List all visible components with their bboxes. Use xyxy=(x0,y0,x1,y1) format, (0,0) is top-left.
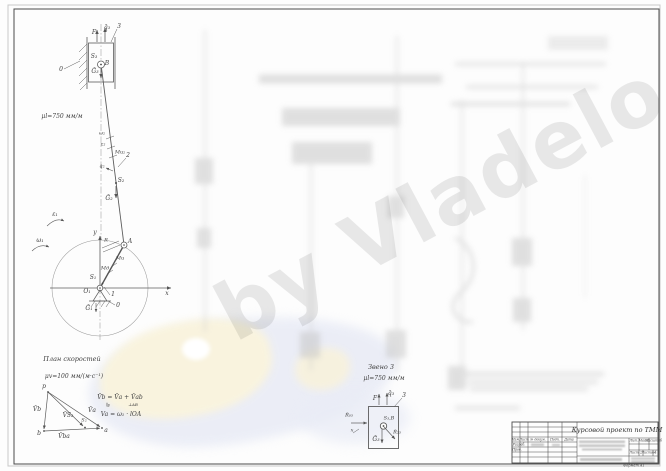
vector-vba xyxy=(44,428,100,431)
label-G1: Ḡ₁ xyxy=(85,306,92,312)
link3-label-G3: Ḡ₃ xyxy=(372,437,379,443)
label-Mi2: Ми₂ xyxy=(115,151,125,156)
leader-ground1 xyxy=(108,301,115,305)
label-axis-x: x xyxy=(165,291,168,297)
label-eps2: ε₂ xyxy=(101,143,106,148)
label-A: A xyxy=(128,239,132,245)
tb-sheets-label: Листов xyxy=(641,451,654,454)
guide-wall-hatching xyxy=(79,44,87,90)
link3-label-F: F xyxy=(373,396,377,402)
label-vba: V̄ba xyxy=(58,434,70,440)
label-eps1: ε₁ xyxy=(52,212,58,218)
link3-leader xyxy=(394,398,402,407)
pole-p xyxy=(47,391,49,393)
omega1-arc-arrow xyxy=(32,246,49,251)
point-a xyxy=(101,427,103,429)
label-link3: 3 xyxy=(117,24,121,30)
label-S1: S₁ xyxy=(90,275,97,281)
link3-label-x: x xyxy=(351,429,354,434)
vector-vb xyxy=(44,392,48,429)
point-b xyxy=(43,430,45,432)
label-pole-p: p xyxy=(42,384,46,390)
tb-col-data: Дата xyxy=(564,438,573,441)
tb-lit: Лит. xyxy=(630,439,639,442)
leader-link3 xyxy=(111,29,117,42)
pivot-hatching xyxy=(91,301,110,307)
velocity-plan-scale: μv=100 мм/(м·с⁻¹) xyxy=(45,374,103,380)
point-S2 xyxy=(115,182,117,184)
tb-sheet-label: Лист xyxy=(629,451,639,454)
tb-sheets-value: 4 xyxy=(654,451,656,454)
title-block-title: Курсовой проект по ТММ xyxy=(572,427,663,434)
label-link2: 2 xyxy=(126,153,130,159)
label-S3: S₃ xyxy=(91,54,98,60)
label-omega2: ω₂ xyxy=(99,132,105,137)
vector-vs2 xyxy=(48,392,83,426)
label-ground1: 0 xyxy=(116,303,120,309)
label-point-a: a xyxy=(104,428,108,434)
label-q2: q̄₂ xyxy=(99,165,104,170)
tb-col-doc: № докум. xyxy=(530,438,545,441)
eps1-arc-arrow xyxy=(47,220,64,226)
label-va: V̄a xyxy=(88,408,96,414)
label-G3: Ḡ₃ xyxy=(91,69,98,75)
label-axis-y: y xyxy=(93,230,96,236)
label-point-s2: S₂ xyxy=(81,419,86,424)
link3-x-dim xyxy=(353,429,359,433)
link3-label-S3B: S₃,B xyxy=(384,417,395,422)
point-S1 xyxy=(102,283,104,285)
label-ground: 0 xyxy=(59,67,63,73)
mechanism-diagram xyxy=(32,24,171,342)
link3-label-3: 3 xyxy=(402,393,406,399)
tb-scale: Масштаб xyxy=(645,439,662,442)
label-link1: 1 xyxy=(111,292,115,298)
label-G2: Ḡ₂ xyxy=(105,196,112,202)
label-point-b: b xyxy=(37,431,41,437)
velocity-plan-title: План скоростей xyxy=(43,356,100,363)
label-omega1: ω₁ xyxy=(36,238,43,244)
label-vs2: V̄S₂ xyxy=(63,413,74,419)
label-S2: S₂ xyxy=(118,178,125,184)
label-Md: Мд xyxy=(101,267,109,272)
velocity-eq1: V̄b = V̄a + V̄ab xyxy=(97,395,143,401)
label-B: B xyxy=(105,61,109,67)
point-s2-plan xyxy=(84,427,86,429)
q2-vector-arrow xyxy=(106,168,113,171)
label-vb: V̄b xyxy=(33,407,41,413)
label-force-F: F xyxy=(92,30,96,36)
link3-label-R23: R̄₂₃ xyxy=(393,431,401,436)
leader-link2 xyxy=(118,158,126,167)
velocity-eq1-sub-left: ∥y xyxy=(106,403,110,407)
link3-scale: μl=750 мм/м xyxy=(363,376,404,382)
velocity-eq1-sub-right: ⊥AB xyxy=(128,403,138,407)
tb-row-prov: Пров. xyxy=(512,448,522,451)
tb-col-list: Лист xyxy=(519,438,529,441)
drawing-sheet: by Vladelo xyxy=(0,0,666,471)
link3-title: Звено 3 xyxy=(368,364,394,371)
label-R: R xyxy=(104,239,108,244)
link3-label-q3: q̄₃ xyxy=(388,391,394,397)
velocity-eq2: Va = ω₁ · lOA xyxy=(101,412,141,418)
tb-row-razrab: Разраб. xyxy=(513,443,526,446)
label-q3: q̄₃ xyxy=(104,25,110,31)
mechanism-scale-note: μl=750 мм/м xyxy=(41,114,82,120)
tb-format: Формат А1 xyxy=(623,464,645,468)
link3-label-R03: R̄₀₃ xyxy=(345,414,353,419)
label-Mi: Ми xyxy=(116,257,124,262)
label-O1: O₁ xyxy=(83,289,90,295)
leader-ground xyxy=(64,61,80,69)
tb-col-podp: Подп. xyxy=(550,438,560,441)
